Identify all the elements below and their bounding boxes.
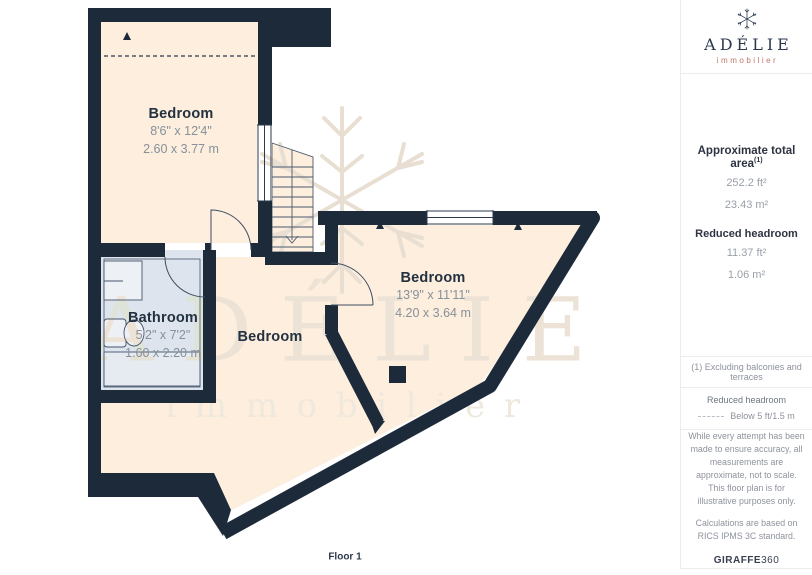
brand-tagline: immobilier [715, 56, 778, 65]
room-name: Bathroom [125, 310, 201, 326]
floor-plan: ADÉLIE immobilier Bedroom 8'6" x 12'4" 2… [0, 0, 680, 575]
disclaimer-text: While every attempt has been made to ens… [688, 430, 805, 509]
info-sidebar: ADÉLIE immobilier Approximate total area… [680, 0, 812, 569]
room-dims-ft: 8'6" x 12'4" [143, 122, 219, 140]
reduced-headroom-title: Reduced headroom [695, 228, 798, 240]
room-dims-ft: 13'9" x 11'11" [395, 286, 471, 304]
room-dims-m: 1.60 x 2.20 m [125, 344, 201, 362]
dashed-line-legend-icon [698, 416, 724, 417]
giraffe360-logo: GIRAFFE360 [714, 553, 780, 568]
floor-label: Floor 1 [328, 552, 361, 563]
room-dims-m: 4.20 x 3.64 m [395, 304, 471, 322]
chimney-column [389, 366, 406, 383]
giraffe-logo-bold: GIRAFFE [714, 555, 761, 566]
footnote: (1) Excluding balconies and terraces [681, 357, 812, 388]
standard-text: Calculations are based on RICS IPMS 3C s… [688, 517, 805, 543]
disclaimer: While every attempt has been made to ens… [681, 430, 812, 569]
room-dims-ft: 5'2" x 7'2" [125, 326, 201, 344]
room-name: Bedroom [143, 106, 219, 122]
sink [104, 261, 142, 300]
room-name: Bedroom [395, 270, 471, 286]
total-area-title: Approximate total area(1) [681, 145, 812, 170]
giraffe-logo-360: 360 [761, 555, 779, 566]
reduced-headroom-m: 1.06 m² [728, 266, 765, 284]
legend-title: Reduced headroom [707, 395, 786, 405]
brand-snowflake-icon [736, 8, 758, 30]
room-label-bathroom: Bathroom 5'2" x 7'2" 1.60 x 2.20 m [125, 310, 201, 362]
reduced-headroom-ft: 11.37 ft² [727, 244, 767, 262]
footnote-marker: (1) [754, 157, 763, 164]
room-label-bedroom-top-left: Bedroom 8'6" x 12'4" 2.60 x 3.77 m [143, 106, 219, 158]
room-dims-m: 2.60 x 3.77 m [143, 140, 219, 158]
room-name: Bedroom [237, 329, 302, 345]
footnote-text: (1) Excluding balconies and terraces [681, 362, 812, 382]
legend: Reduced headroom Below 5 ft/1.5 m [681, 388, 812, 430]
room-label-bedroom-right: Bedroom 13'9" x 11'11" 4.20 x 3.64 m [395, 270, 471, 322]
brand-logo: ADÉLIE immobilier [681, 0, 812, 74]
legend-item: Below 5 ft/1.5 m [730, 411, 795, 421]
floorplan-page: ADÉLIE immobilier Bedroom 8'6" x 12'4" 2… [0, 0, 812, 575]
area-summary: Approximate total area(1) 252.2 ft² 23.4… [681, 74, 812, 357]
total-area-m: 23.43 m² [725, 196, 768, 214]
total-area-ft: 252.2 ft² [726, 174, 766, 192]
room-label-bedroom-middle: Bedroom [237, 329, 302, 345]
brand-name: ADÉLIE [700, 35, 793, 54]
